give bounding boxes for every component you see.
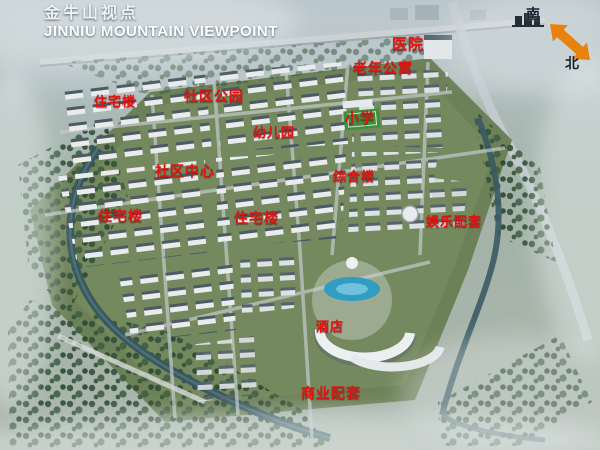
map-label: 老年公寓 [353, 58, 413, 78]
map-label: 酒店 [316, 316, 344, 335]
compass-north-label: 北 [565, 53, 579, 73]
map-label: 住宅楼 [94, 91, 136, 110]
aerial-render-view: 金牛山视点 JINNIU MOUNTAIN VIEWPOINT 南 北 医院老年… [0, 0, 600, 450]
map-label: 娱乐配套 [426, 211, 482, 230]
title-block: 金牛山视点 JINNIU MOUNTAIN VIEWPOINT [44, 5, 278, 41]
viewpoint-title-chinese: 金牛山视点 [44, 5, 278, 23]
viewpoint-title-english: JINNIU MOUNTAIN VIEWPOINT [44, 23, 278, 40]
map-label: 医院 [392, 33, 424, 54]
aerial-scene [0, 0, 600, 450]
compass-south-label: 南 [526, 4, 540, 24]
map-label: 住宅楼 [234, 208, 279, 228]
map-label: 幼儿园 [253, 122, 295, 141]
map-label: 社区公园 [184, 86, 244, 106]
dome-building [402, 206, 418, 222]
map-label: 综合楼 [333, 166, 375, 185]
map-label: 住宅楼 [98, 206, 143, 226]
map-label: 商业配套 [301, 383, 361, 403]
map-label: 社区中心 [155, 161, 215, 181]
map-label: 小学 [345, 108, 375, 128]
